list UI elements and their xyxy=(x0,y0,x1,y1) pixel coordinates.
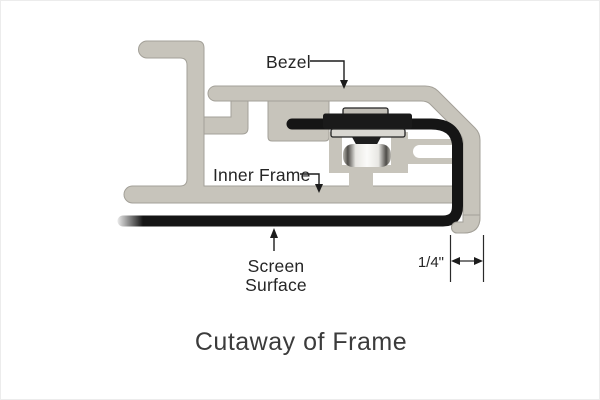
cutaway-diagram: Bezel Inner Frame Screen Surface 1/4" Cu… xyxy=(0,0,600,400)
screen-surface-label-line2: Surface xyxy=(245,275,307,295)
screen-left-fade xyxy=(115,213,143,230)
diagram-title: Cutaway of Frame xyxy=(195,328,407,356)
extrusion-inner-connector xyxy=(204,101,248,134)
bezel-label: Bezel xyxy=(266,52,311,72)
dimension-quarter-inch xyxy=(451,235,484,282)
screen-surface-label-line1: Screen xyxy=(248,256,305,276)
clamp-plate xyxy=(323,114,412,130)
frame-cutaway-svg: Bezel Inner Frame Screen Surface 1/4" Cu… xyxy=(1,1,600,400)
dimension-label: 1/4" xyxy=(418,254,444,271)
clamp-roller xyxy=(343,144,391,167)
screen-surface-pointer xyxy=(270,228,278,251)
channel-pedestal xyxy=(349,169,373,188)
bezel-pointer xyxy=(310,61,348,89)
inner-frame-label: Inner Frame xyxy=(213,165,311,185)
clamp-washer xyxy=(331,129,405,137)
